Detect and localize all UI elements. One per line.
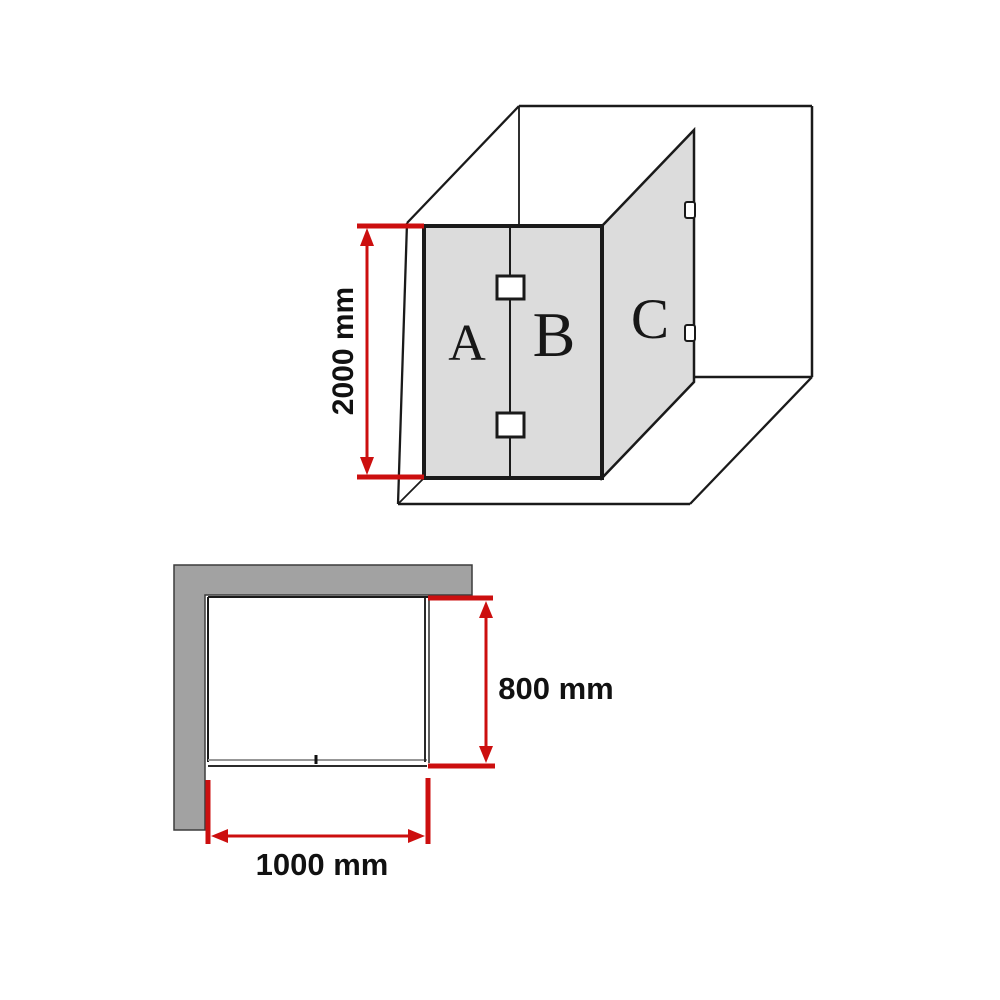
room-floor-right-edge <box>690 377 812 504</box>
panel-b-label: B <box>533 299 576 370</box>
depth-dimension-arrowhead-top-icon <box>479 601 493 618</box>
width-dimension-arrowhead-left-icon <box>211 829 228 843</box>
width-dimension-label: 1000 mm <box>256 847 389 882</box>
wall-bracket-bottom-icon <box>685 325 695 341</box>
room-floor-left-corner-edge <box>398 478 424 504</box>
panel-a-label: A <box>448 315 486 372</box>
depth-dimension-label: 800 mm <box>498 671 613 706</box>
height-dimension-label: 2000 mm <box>327 287 360 415</box>
height-dimension-arrowhead-bottom-icon <box>360 457 374 475</box>
depth-dimension-arrowhead-bottom-icon <box>479 746 493 763</box>
height-dimension-arrowhead-top-icon <box>360 228 374 246</box>
panel-c-label: C <box>631 288 669 351</box>
perspective-view: A B C 2000 mm <box>327 106 812 504</box>
wall-bracket-top-icon <box>685 202 695 218</box>
width-dimension-arrowhead-right-icon <box>408 829 425 843</box>
shower-screen-dimension-diagram: A B C 2000 mm 800 mm <box>0 0 1000 1000</box>
hinge-bottom-icon <box>497 413 524 437</box>
room-left-wall-top-edge <box>407 106 519 223</box>
plan-view: 800 mm 1000 mm <box>174 565 614 882</box>
room-left-wall-front-edge <box>398 223 407 504</box>
hinge-top-icon <box>497 276 524 299</box>
